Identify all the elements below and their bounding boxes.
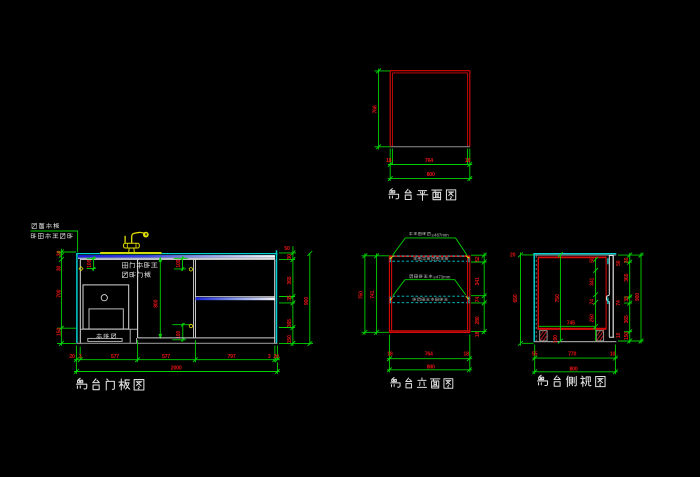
svg-text:650: 650: [513, 294, 519, 302]
svg-text:770: 770: [568, 351, 576, 357]
svg-text:100: 100: [176, 259, 182, 267]
svg-text:800: 800: [427, 365, 435, 371]
svg-text:700: 700: [56, 289, 62, 297]
svg-text:764: 764: [425, 352, 433, 358]
svg-text:10: 10: [610, 351, 616, 357]
svg-text:100: 100: [553, 335, 559, 343]
svg-text:800: 800: [427, 172, 435, 178]
svg-text:18: 18: [465, 158, 471, 164]
svg-text:100: 100: [87, 260, 93, 268]
svg-text:3: 3: [268, 354, 271, 360]
svg-text:20: 20: [69, 354, 75, 360]
svg-text:341: 341: [475, 277, 481, 285]
svg-text:365: 365: [624, 273, 630, 281]
svg-text:30: 30: [56, 266, 62, 272]
svg-text:18: 18: [475, 332, 481, 338]
svg-text:50: 50: [284, 246, 290, 252]
svg-text:74: 74: [589, 299, 595, 305]
svg-text:10: 10: [616, 333, 622, 339]
svg-text:18: 18: [386, 158, 392, 164]
svg-text:766: 766: [372, 105, 378, 113]
svg-text:150: 150: [287, 335, 293, 343]
svg-text:3: 3: [79, 354, 82, 360]
svg-text:800: 800: [153, 299, 159, 307]
svg-text:341: 341: [589, 278, 595, 286]
svg-text:365: 365: [287, 276, 293, 284]
svg-text:18: 18: [387, 352, 393, 358]
svg-text:150: 150: [56, 328, 62, 336]
svg-text:50: 50: [589, 257, 595, 263]
svg-text:18: 18: [463, 352, 469, 358]
svg-text:50: 50: [616, 260, 622, 266]
svg-text:20: 20: [510, 253, 516, 259]
svg-text:745: 745: [567, 320, 575, 326]
svg-text:150: 150: [624, 332, 630, 340]
svg-text:750: 750: [358, 291, 364, 299]
svg-text:800: 800: [570, 366, 578, 372]
svg-text:35: 35: [624, 296, 630, 302]
svg-text:30: 30: [287, 254, 293, 260]
svg-text:250: 250: [589, 314, 595, 322]
svg-text:365: 365: [624, 315, 630, 323]
svg-text:797: 797: [228, 354, 236, 360]
svg-text:280: 280: [475, 316, 481, 324]
svg-text:365: 365: [287, 319, 293, 327]
svg-text:20: 20: [274, 354, 280, 360]
svg-text:≥473mm: ≥473mm: [433, 274, 450, 279]
svg-text:900: 900: [635, 293, 641, 301]
svg-text:30: 30: [624, 257, 630, 263]
svg-text:35: 35: [287, 295, 293, 301]
svg-text:55: 55: [532, 351, 538, 357]
svg-text:74: 74: [616, 300, 622, 306]
svg-text:577: 577: [111, 354, 119, 360]
svg-text:≥487mm: ≥487mm: [432, 232, 449, 237]
svg-text:900: 900: [304, 297, 310, 305]
svg-text:750: 750: [555, 294, 561, 302]
svg-text:2000: 2000: [171, 365, 182, 371]
svg-text:74: 74: [475, 297, 481, 303]
svg-text:577: 577: [162, 354, 170, 360]
svg-text:741: 741: [370, 290, 376, 298]
svg-text:30: 30: [56, 251, 62, 257]
svg-text:764: 764: [425, 158, 433, 164]
svg-text:52: 52: [475, 256, 481, 262]
